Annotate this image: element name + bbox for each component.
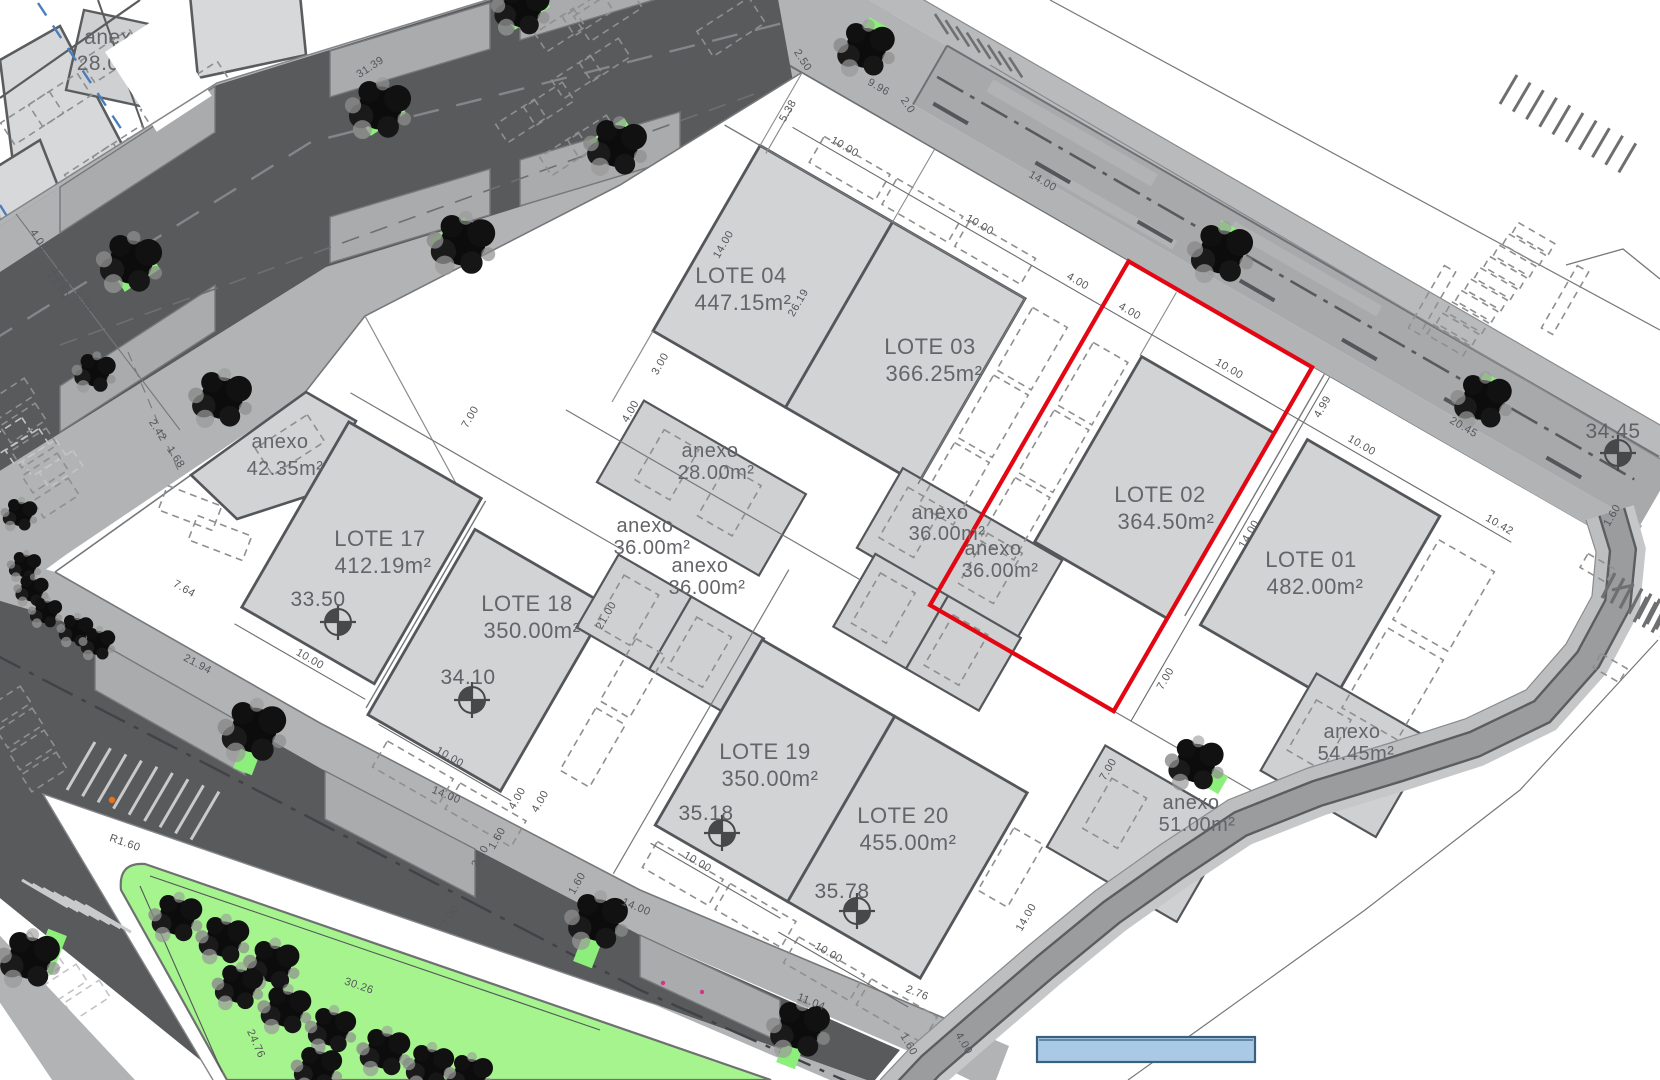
- svg-text:LOTE 18: LOTE 18: [481, 591, 573, 616]
- svg-text:LOTE 20: LOTE 20: [857, 803, 949, 828]
- svg-text:35.78: 35.78: [814, 880, 869, 903]
- svg-text:412.19m²: 412.19m²: [335, 553, 432, 578]
- svg-text:482.00m²: 482.00m²: [1267, 574, 1364, 599]
- svg-text:anexo: anexo: [682, 440, 739, 462]
- svg-text:36.00m²: 36.00m²: [962, 560, 1039, 582]
- svg-text:anexo: anexo: [252, 431, 309, 453]
- svg-text:350.00m²: 350.00m²: [722, 766, 819, 791]
- svg-text:anexo: anexo: [672, 555, 729, 577]
- svg-text:54.45m²: 54.45m²: [1318, 743, 1395, 765]
- svg-text:anexo: anexo: [1163, 792, 1220, 814]
- svg-text:anexo: anexo: [1324, 721, 1381, 743]
- svg-text:366.25m²: 366.25m²: [886, 361, 983, 386]
- svg-text:455.00m²: 455.00m²: [860, 830, 957, 855]
- svg-text:51.00m²: 51.00m²: [1159, 814, 1236, 836]
- svg-text:anexo: anexo: [617, 515, 674, 537]
- svg-text:34.10: 34.10: [440, 666, 495, 689]
- svg-text:34.45: 34.45: [1585, 420, 1640, 443]
- svg-text:28.00m²: 28.00m²: [678, 462, 755, 484]
- svg-text:LOTE 02: LOTE 02: [1114, 482, 1206, 507]
- svg-text:anexo: anexo: [965, 538, 1022, 560]
- svg-text:LOTE 04: LOTE 04: [695, 263, 787, 288]
- svg-text:35.18: 35.18: [678, 802, 733, 825]
- svg-text:36.00m²: 36.00m²: [669, 577, 746, 599]
- svg-text:LOTE 19: LOTE 19: [719, 739, 811, 764]
- svg-text:364.50m²: 364.50m²: [1118, 509, 1215, 534]
- svg-text:33.50: 33.50: [290, 588, 345, 611]
- svg-text:anexo: anexo: [912, 502, 969, 524]
- svg-text:LOTE 03: LOTE 03: [884, 334, 976, 359]
- svg-text:350.00m²: 350.00m²: [484, 618, 581, 643]
- svg-text:LOTE 01: LOTE 01: [1265, 547, 1357, 572]
- svg-text:42.35m²: 42.35m²: [247, 458, 324, 480]
- svg-text:LOTE 17: LOTE 17: [334, 526, 426, 551]
- svg-text:447.15m²: 447.15m²: [695, 290, 792, 315]
